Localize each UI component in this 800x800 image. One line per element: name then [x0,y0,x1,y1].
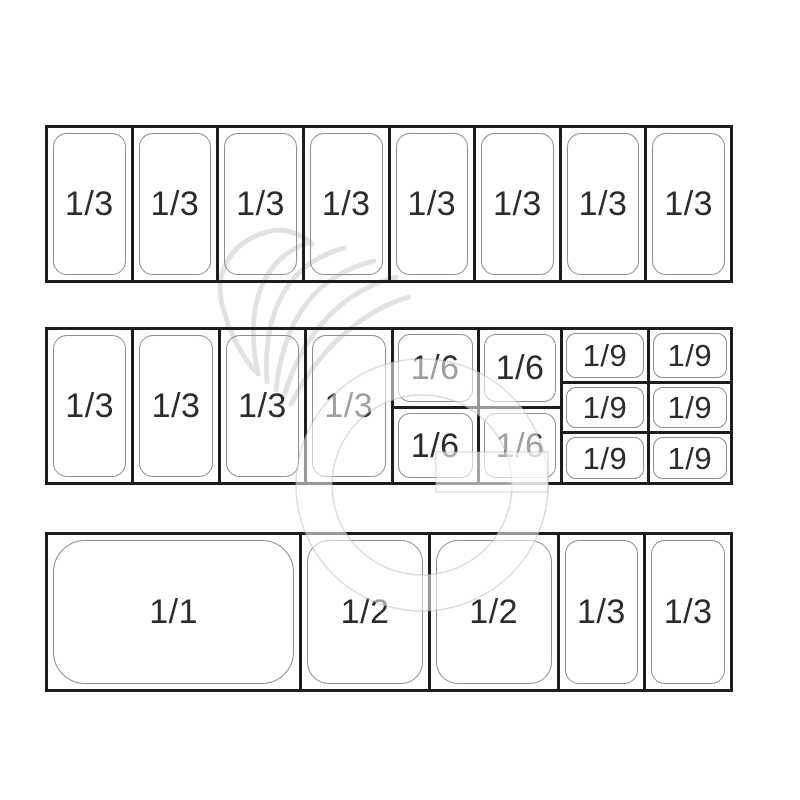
pan-size-label: 1/3 [579,187,628,221]
pan-size-label: 1/6 [411,429,460,463]
pan-size-label: 1/9 [583,392,628,423]
pan-size-label: 1/3 [238,389,287,423]
ninths-group: 1/91/91/91/91/91/9 [560,330,730,482]
gn-pan: 1/3 [226,335,299,477]
pan-size-label: 1/9 [583,443,628,474]
gn-pan: 1/3 [396,133,469,275]
pan-cell: 1/6 [394,330,477,406]
pan-cell: 1/3 [559,128,645,280]
gn-pan: 1/9 [653,437,727,479]
pan-size-label: 1/6 [411,351,460,385]
pan-size-label: 1/9 [668,443,713,474]
pan-cell: 1/9 [647,381,730,432]
pan-size-label: 1/1 [149,595,198,629]
gn-pan: 1/9 [653,387,727,429]
gn-pan: 1/2 [436,540,552,684]
pan-cell: 1/3 [131,128,217,280]
pan-cell: 1/3 [218,330,304,482]
pan-size-label: 1/3 [236,187,285,221]
pan-size-label: 1/3 [324,389,373,423]
pan-size-label: 1/9 [668,340,713,371]
pan-size-label: 1/3 [493,187,542,221]
pan-cell: 1/9 [563,381,646,432]
pan-size-label: 1/6 [496,429,545,463]
pan-cell: 1/3 [304,330,390,482]
gn-pan: 1/6 [398,334,473,402]
pan-cell: 1/3 [216,128,302,280]
pan-size-label: 1/9 [583,340,628,371]
pan-cell: 1/2 [428,535,557,689]
sixths-group: 1/61/61/61/6 [391,330,561,482]
pan-cell: 1/9 [563,431,646,482]
gn-pan: 1/3 [139,335,212,477]
pan-cell: 1/3 [473,128,559,280]
pan-cell: 1/9 [647,330,730,381]
pan-cell: 1/3 [302,128,388,280]
gn-pan: 1/3 [139,133,212,275]
gn-pan-layout-diagram: 1/31/31/31/31/31/31/31/3 1/31/31/31/31/6… [0,0,800,800]
gn-pan: 1/3 [652,133,725,275]
gn-pan: 1/9 [566,387,643,429]
gn-pan: 1/3 [53,133,126,275]
pan-size-label: 1/3 [65,187,114,221]
pan-size-label: 1/3 [577,595,626,629]
pan-cell: 1/9 [563,330,646,381]
gn-pan: 1/2 [307,540,423,684]
pan-cell: 1/6 [477,330,560,406]
pan-size-label: 1/3 [151,187,200,221]
gn-pan: 1/3 [224,133,297,275]
pan-size-label: 1/3 [152,389,201,423]
pan-cell: 1/3 [48,128,131,280]
gn-pan: 1/9 [653,333,727,378]
pan-cell: 1/3 [644,128,730,280]
pan-cell: 1/2 [299,535,428,689]
gn-pan: 1/3 [310,133,383,275]
pan-size-label: 1/3 [65,389,114,423]
gn-pan: 1/9 [566,333,643,378]
gn-pan: 1/3 [312,335,385,477]
gn-pan: 1/6 [484,413,556,478]
gn-pan: 1/3 [53,335,126,477]
pan-row-top: 1/31/31/31/31/31/31/31/3 [45,125,733,283]
gn-pan: 1/3 [567,133,640,275]
gn-pan: 1/3 [481,133,554,275]
pan-size-label: 1/2 [469,595,518,629]
pan-cell: 1/3 [131,330,217,482]
pan-size-label: 1/3 [322,187,371,221]
gn-pan: 1/6 [398,413,473,478]
gn-pan: 1/9 [566,437,643,479]
pan-size-label: 1/3 [664,595,713,629]
pan-cell: 1/9 [647,431,730,482]
pan-cell: 1/6 [394,406,477,482]
pan-cell: 1/6 [477,406,560,482]
pan-cell: 1/3 [48,330,131,482]
pan-size-label: 1/3 [664,187,713,221]
pan-cell: 1/1 [48,535,299,689]
pan-size-label: 1/2 [341,595,390,629]
pan-cell: 1/3 [557,535,644,689]
pan-size-label: 1/3 [407,187,456,221]
pan-size-label: 1/9 [668,392,713,423]
pan-cell: 1/3 [388,128,474,280]
pan-cell: 1/3 [643,535,730,689]
pan-size-label: 1/6 [496,351,545,385]
pan-row-middle: 1/31/31/31/31/61/61/61/61/91/91/91/91/91… [45,327,733,485]
gn-pan: 1/6 [484,334,556,402]
gn-pan: 1/3 [565,540,639,684]
gn-pan: 1/3 [651,540,725,684]
pan-row-bottom: 1/11/21/21/31/3 [45,532,733,692]
gn-pan: 1/1 [53,540,294,684]
